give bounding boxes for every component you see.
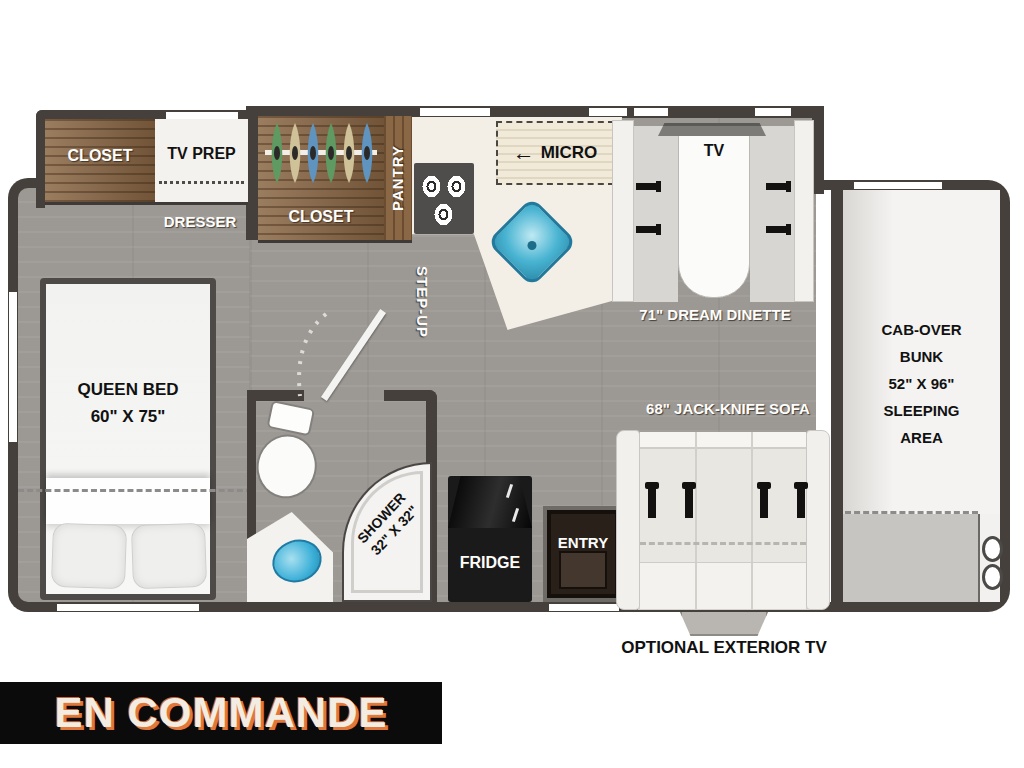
seatbelt-icon <box>760 488 768 518</box>
seatbelt-icon <box>766 226 788 233</box>
seatbelt-icon <box>636 226 658 233</box>
sofa-seat <box>640 562 806 609</box>
window <box>57 604 199 611</box>
pillow <box>51 523 127 590</box>
tv-label: TV <box>678 142 750 160</box>
cupholder-icon <box>982 536 1003 562</box>
dinette-seat-right <box>750 126 794 302</box>
status-banner-text: EN COMMANDE <box>55 689 388 737</box>
cab-left-wall <box>831 190 843 602</box>
entry-door: ENTRY <box>543 506 623 602</box>
kitchen-closet-label: CLOSET <box>258 208 384 226</box>
bath-door-swing-arc <box>270 300 350 410</box>
window <box>854 182 942 189</box>
sofa-dashline <box>640 542 806 545</box>
entry-step-panel <box>559 551 607 589</box>
pantry-label: PANTRY <box>389 145 406 211</box>
bedroom-closet: CLOSET <box>45 119 155 205</box>
fridge-label: FRIDGE <box>448 554 532 572</box>
kitchen-closet: CLOSET <box>258 116 384 243</box>
tv-prep-dashline <box>159 181 244 184</box>
sink-drain <box>526 239 539 252</box>
window <box>755 108 791 116</box>
micro-label: MICRO <box>541 143 598 163</box>
bedroom-slideout-dashline <box>18 489 252 492</box>
sofa-headrest <box>640 432 806 449</box>
dinette-bench-right <box>794 120 814 302</box>
cupholder-icon <box>982 564 1003 590</box>
sofa-armrest-right <box>806 430 830 610</box>
pillow <box>131 523 207 590</box>
queen-bed-label: QUEEN BED 60" X 75" <box>46 376 210 430</box>
dresser-label: DRESSER <box>148 213 252 230</box>
dinette-label: 71" DREAM DINETTE <box>615 306 815 323</box>
micro-arrow-icon: ← <box>513 142 535 164</box>
sofa-label: 68" JACK-KNIFE SOFA <box>620 400 836 417</box>
seatbelt-icon <box>648 488 656 518</box>
bedroom-closet-label: CLOSET <box>45 147 155 165</box>
queen-bed: QUEEN BED 60" X 75" <box>40 278 216 600</box>
seatbelt-icon <box>685 488 693 518</box>
step-up-label: STEP-UP <box>414 266 431 388</box>
window <box>634 108 668 116</box>
tv-prep-label: TV PREP <box>155 145 248 163</box>
seatbelt-icon <box>766 183 788 190</box>
tv-mount <box>658 123 766 136</box>
exterior-tv-mount <box>680 612 768 636</box>
seatbelt-icon <box>797 488 805 518</box>
entry-label: ENTRY <box>551 534 615 551</box>
dinette-bench-left <box>612 120 634 302</box>
microwave-overhead: ← MICRO <box>496 121 614 185</box>
cab-console <box>978 514 1000 602</box>
exterior-tv-label: OPTIONAL EXTERIOR TV <box>594 638 854 658</box>
burner-icon <box>446 174 467 199</box>
cab-over-label: CAB-OVER BUNK 52" X 96" SLEEPING AREA <box>843 316 1000 451</box>
entry-step <box>549 604 619 611</box>
burner-icon <box>421 174 442 199</box>
window <box>166 112 238 119</box>
pantry: PANTRY <box>384 116 412 243</box>
fridge-top <box>448 476 532 528</box>
cab-floor <box>843 514 978 602</box>
window <box>589 108 627 116</box>
fridge: FRIDGE <box>448 476 532 602</box>
cab-over-bunk: CAB-OVER BUNK 52" X 96" SLEEPING AREA <box>843 190 1000 514</box>
hanging-clothes-icon <box>265 120 377 186</box>
burner-icon <box>433 202 454 227</box>
window <box>420 108 490 116</box>
tv-prep: TV PREP <box>155 119 248 205</box>
status-banner: EN COMMANDE <box>0 682 442 744</box>
rv-floorplan: CLOSET TV PREP DRESSER CLOSET PANTRY ← M… <box>0 0 1024 768</box>
stove-cooktop <box>414 163 474 234</box>
bedroom-side-window <box>9 292 17 442</box>
sofa-armrest-left <box>616 430 640 610</box>
seatbelt-icon <box>636 183 658 190</box>
dinette-seat-left <box>634 126 678 302</box>
bed-sheet-fold <box>46 478 210 524</box>
